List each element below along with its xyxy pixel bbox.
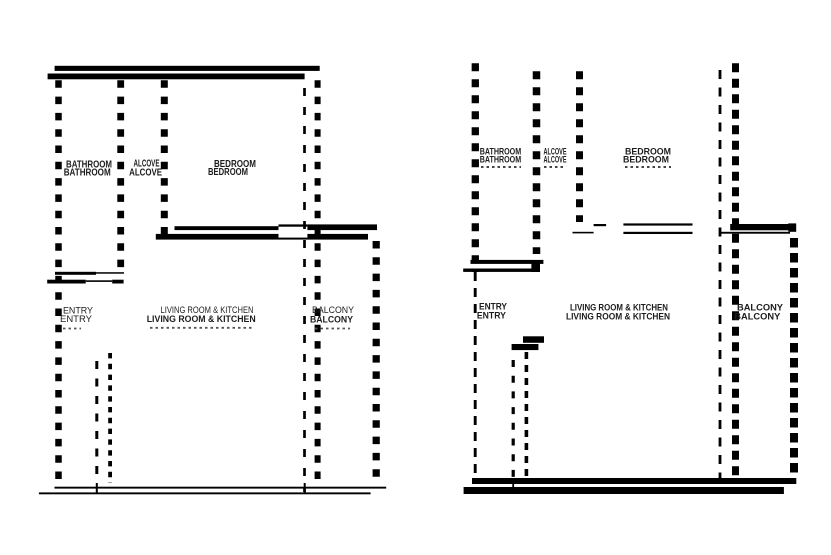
svg-text:BATHROOM: BATHROOM <box>480 154 522 164</box>
svg-text:ENTRY: ENTRY <box>60 314 92 324</box>
svg-text:ALCOVE: ALCOVE <box>544 154 567 164</box>
svg-text:LIVING ROOM & KITCHEN: LIVING ROOM & KITCHEN <box>566 311 670 321</box>
svg-text:BALCONY: BALCONY <box>734 311 781 321</box>
svg-text:BATHROOM: BATHROOM <box>64 167 111 178</box>
svg-text:ENTRY: ENTRY <box>477 310 507 320</box>
svg-text:BEDROOM: BEDROOM <box>623 154 669 164</box>
svg-text:BEDROOM: BEDROOM <box>208 167 248 178</box>
svg-text:ALCOVE: ALCOVE <box>129 167 162 178</box>
svg-text:BALCONY: BALCONY <box>310 315 354 325</box>
svg-text:LIVING ROOM & KITCHEN: LIVING ROOM & KITCHEN <box>147 314 256 324</box>
svg-text:BALCONY: BALCONY <box>312 305 354 315</box>
